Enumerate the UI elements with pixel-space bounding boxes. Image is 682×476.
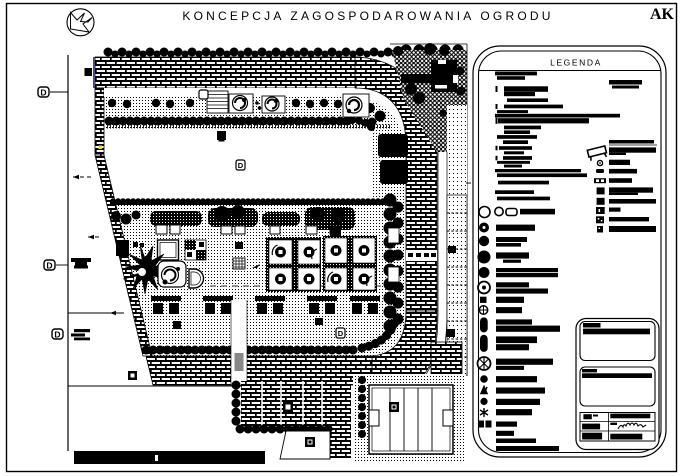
svg-text:D: D [54, 330, 60, 340]
svg-text:D: D [46, 261, 52, 271]
svg-text:KONCEPCJA ZAGOSPODAROWANIA OGR: KONCEPCJA ZAGOSPODAROWANIA OGRODU [182, 9, 553, 23]
svg-text:AK: AK [650, 6, 675, 23]
svg-text:D: D [238, 161, 244, 170]
svg-text:LEGENDA: LEGENDA [550, 58, 602, 68]
svg-text:D: D [338, 329, 344, 338]
svg-text:D: D [40, 88, 46, 98]
